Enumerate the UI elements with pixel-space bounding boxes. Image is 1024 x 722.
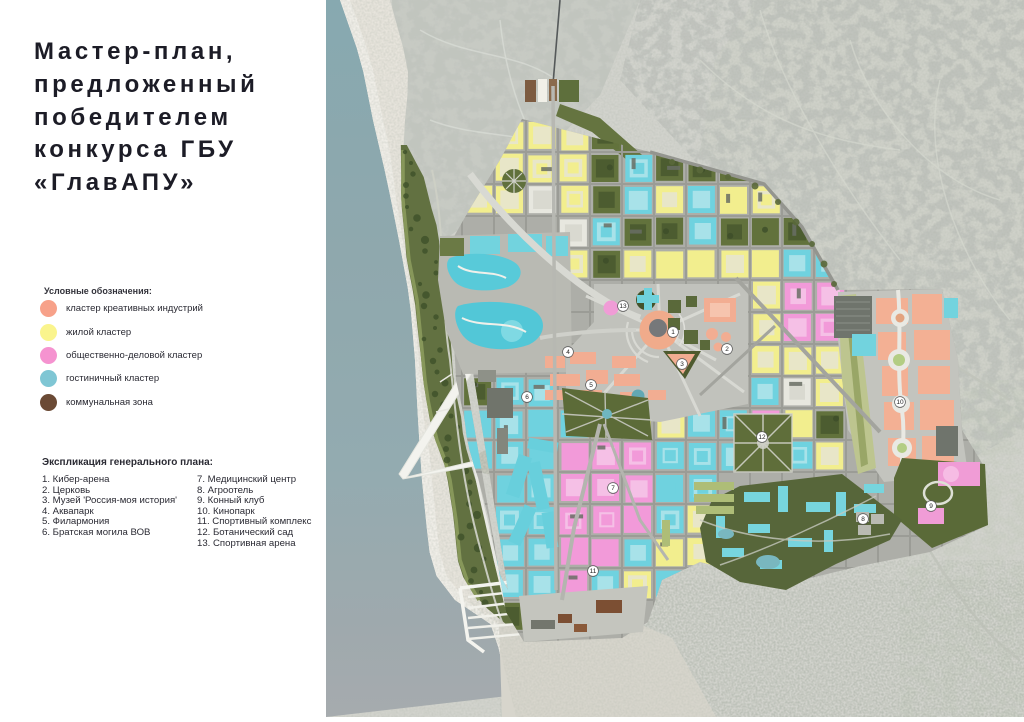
svg-text:10: 10 bbox=[896, 399, 904, 406]
svg-text:7: 7 bbox=[611, 485, 615, 492]
svg-text:13: 13 bbox=[619, 303, 627, 310]
svg-text:9: 9 bbox=[929, 503, 933, 510]
svg-text:8: 8 bbox=[861, 516, 865, 523]
svg-text:6: 6 bbox=[525, 394, 529, 401]
svg-text:4: 4 bbox=[566, 349, 570, 356]
svg-text:3: 3 bbox=[680, 361, 684, 368]
svg-text:1: 1 bbox=[671, 329, 675, 336]
svg-text:5: 5 bbox=[589, 382, 593, 389]
svg-text:12: 12 bbox=[758, 434, 766, 441]
svg-text:11: 11 bbox=[590, 568, 597, 575]
svg-text:2: 2 bbox=[725, 346, 729, 353]
